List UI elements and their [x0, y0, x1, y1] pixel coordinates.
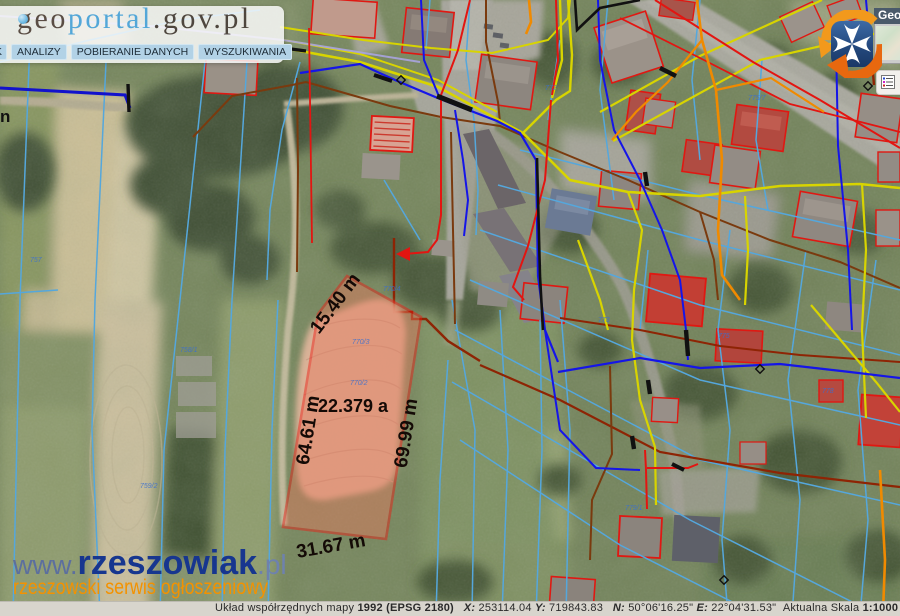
svg-text:770/3: 770/3 [352, 339, 370, 346]
svg-text:759/2: 759/2 [140, 483, 158, 490]
svg-text:758/1: 758/1 [180, 347, 198, 354]
svg-text:778: 778 [822, 388, 834, 395]
svg-text:n: n [0, 107, 10, 126]
svg-text:770/4: 770/4 [383, 286, 401, 293]
svg-text:770/2: 770/2 [350, 380, 368, 387]
svg-text:772: 772 [545, 85, 557, 92]
svg-text:773: 773 [598, 317, 610, 324]
svg-text:779/1: 779/1 [625, 505, 643, 512]
svg-text:775/7: 775/7 [748, 95, 767, 102]
svg-text:775: 775 [718, 333, 730, 340]
svg-text:757: 757 [30, 257, 43, 264]
svg-text:22.379 a: 22.379 a [318, 396, 389, 416]
